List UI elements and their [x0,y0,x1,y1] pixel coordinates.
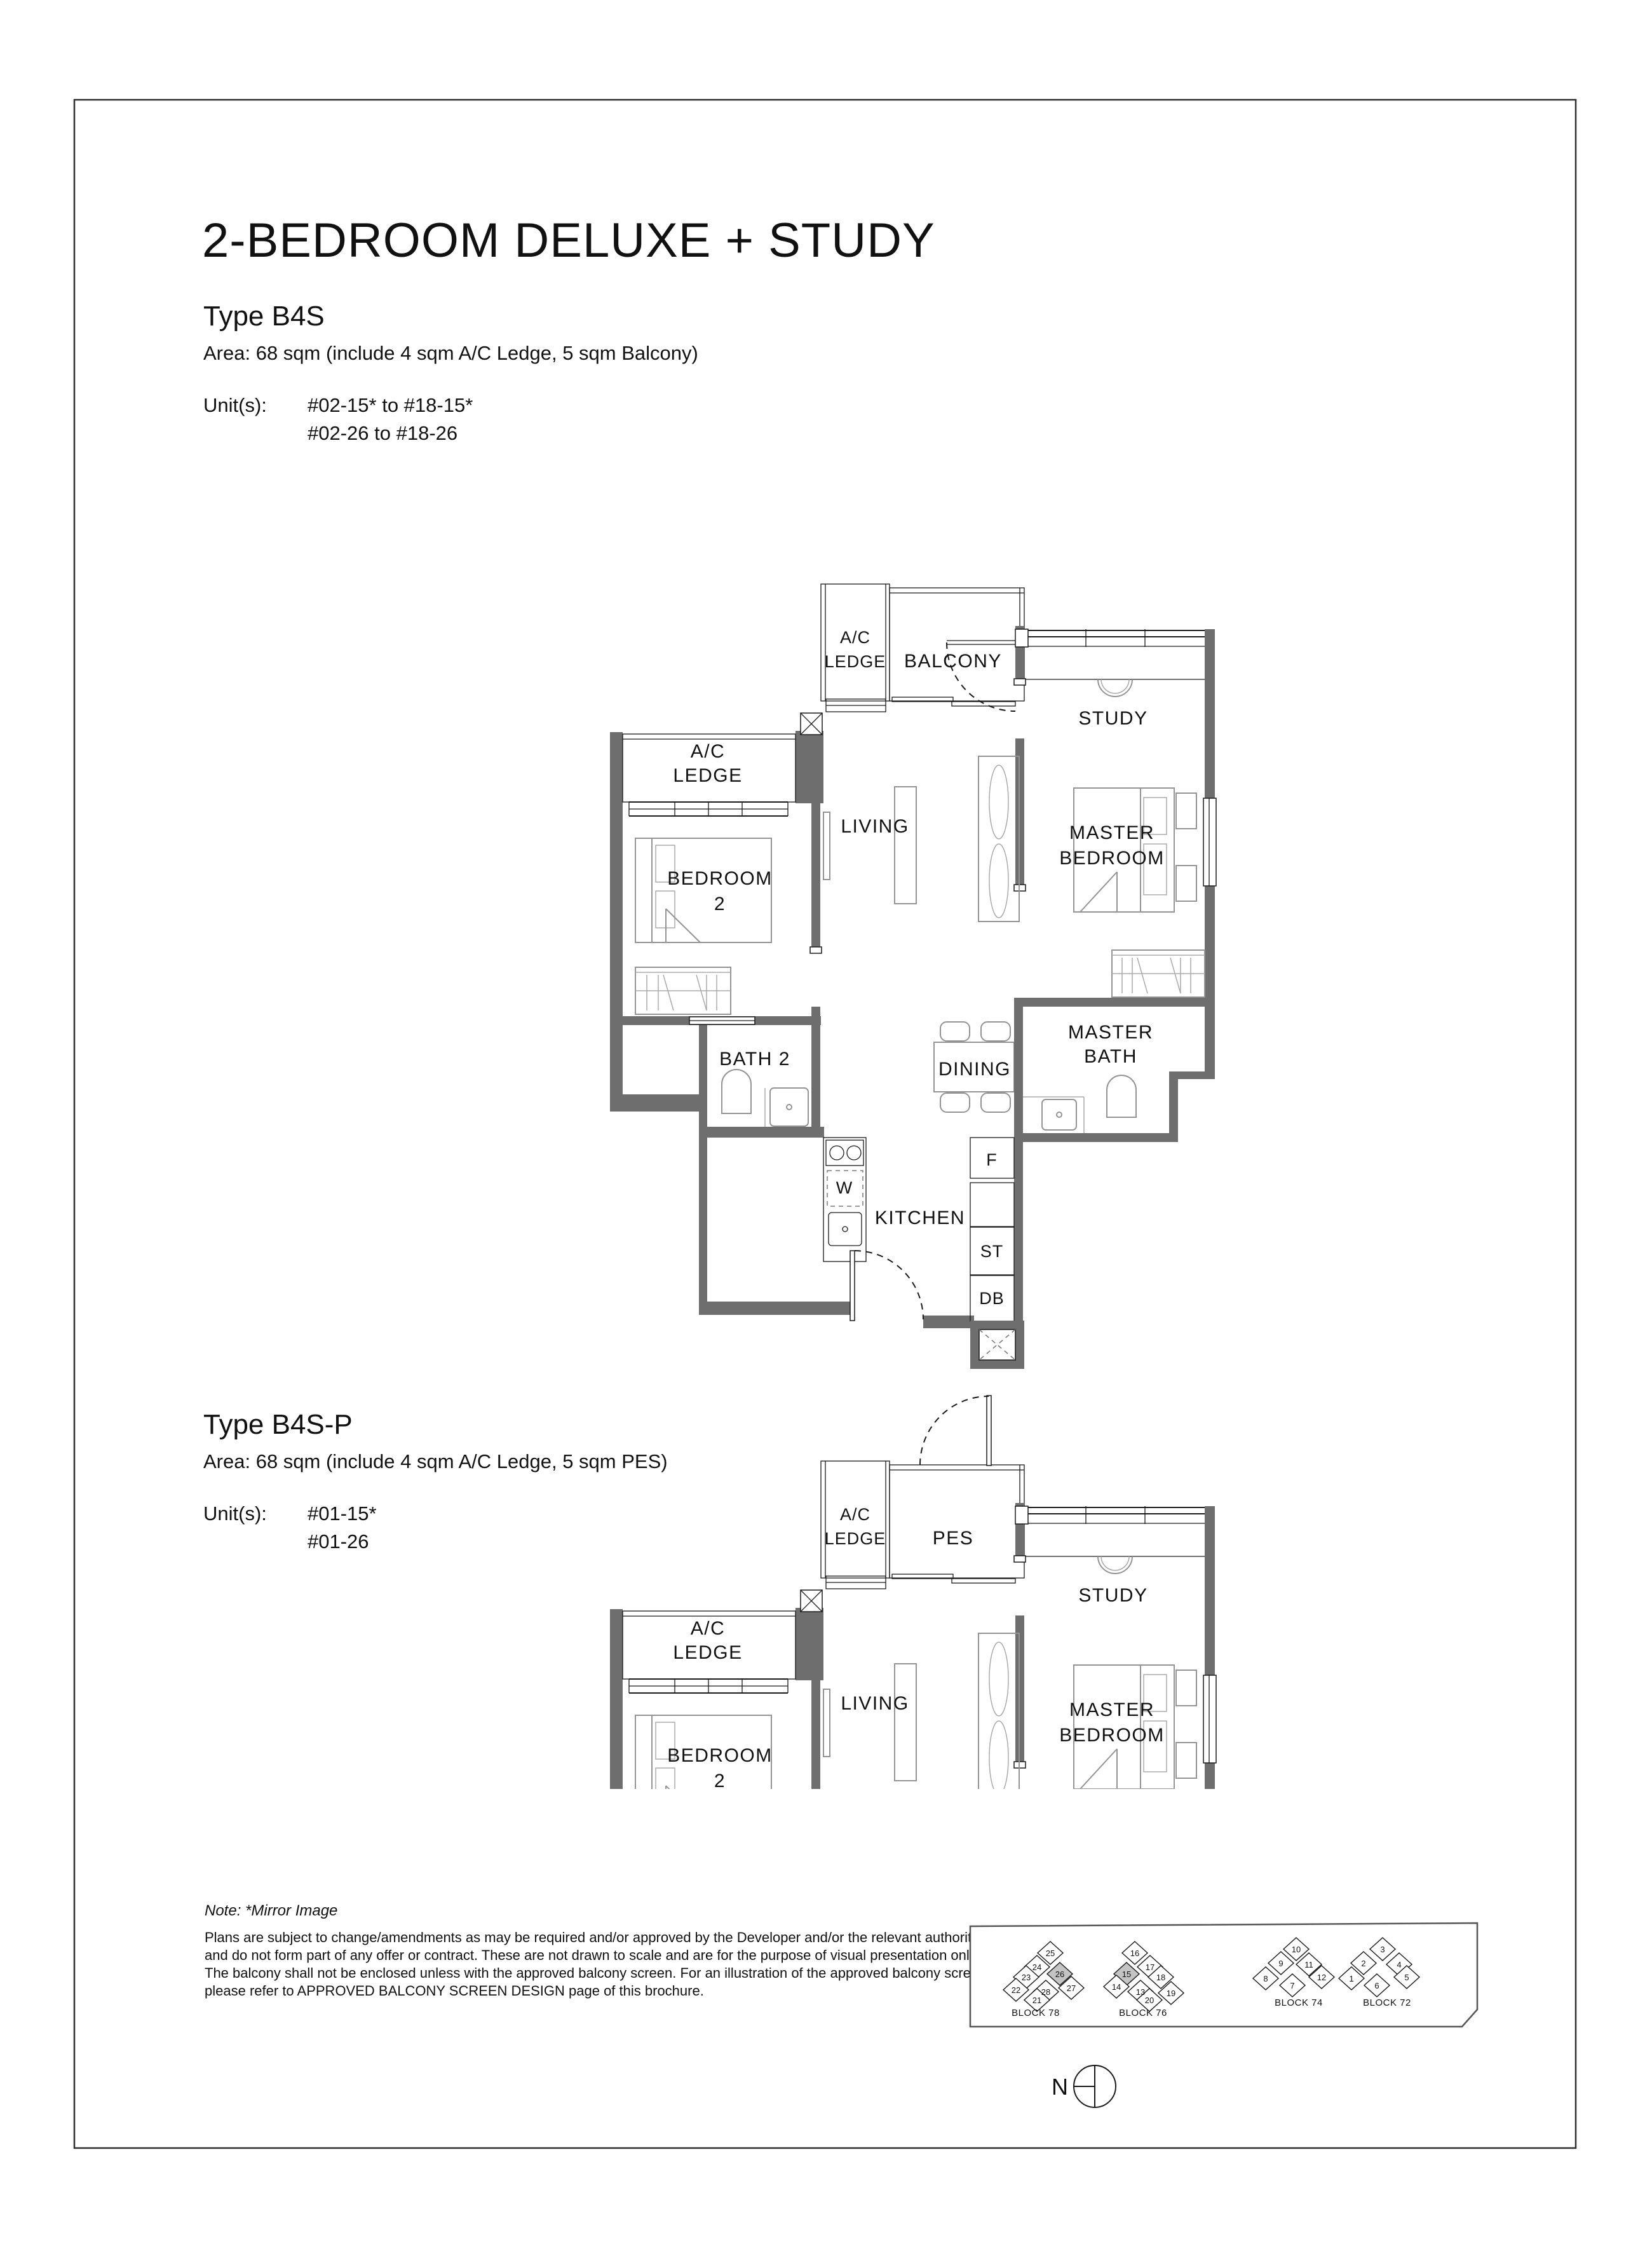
keyplan-unit-number: 14 [1112,1982,1121,1992]
key-plan: 2524232226272821BLOCK 781617151814131920… [970,1923,1477,2027]
keyplan-unit-number: 13 [1136,1987,1145,1997]
keyplan-unit-number: 18 [1156,1973,1165,1982]
room-label: KITCHEN [875,1207,965,1228]
room-label: DB [979,1289,1005,1308]
keyplan-block-label: BLOCK 78 [1012,2008,1060,2018]
unit-range-line: #02-26 to #18-26 [308,422,457,444]
keyplan-unit-number: 11 [1304,1960,1313,1969]
disclaimer-line: please refer to APPROVED BALCONY SCREEN … [205,1983,704,1999]
keyplan-unit-number: 24 [1032,1962,1041,1972]
disclaimer-line: The balcony shall not be enclosed unless… [205,1965,990,1981]
room-label: LIVING [841,1693,909,1714]
room-label: BEDROOM [667,868,773,889]
room-label: LEDGE [825,1529,886,1548]
room-label: LEDGE [825,652,886,671]
room-label: BATH [1084,1046,1137,1067]
notes: Note: *Mirror Image Plans are subject to… [205,1902,990,1999]
keyplan-unit-number: 27 [1067,1983,1076,1993]
unit-range-line: #02-15* to #18-15* [308,394,473,416]
room-label: A/C [691,741,726,762]
keyplan-block-label: BLOCK 76 [1119,2008,1167,2018]
keyplan-unit-number: 9 [1278,1959,1283,1968]
room-label: STUDY [1078,708,1148,729]
keyplan-unit-number: 17 [1146,1962,1154,1972]
room-label: F [986,1150,998,1169]
room-label: MASTER [1069,822,1154,843]
type-label: Type B4S-P [203,1409,353,1440]
room-label: 2 [714,894,726,915]
type-label: Type B4S [203,301,325,332]
page-title: 2-BEDROOM DELUXE + STUDY [202,214,935,268]
room-label: BALCONY [904,651,1002,672]
disclaimer-line: Plans are subject to change/amendments a… [205,1929,989,1945]
keyplan-unit-number: 23 [1022,1973,1031,1982]
room-label: LEDGE [673,765,742,786]
pes-gate [920,1396,991,1466]
floor-plan-b4s-p: A/CLEDGEPESSTUDYA/CLEDGELIVINGMASTERBEDR… [610,1396,1216,2246]
room-label: LIVING [841,816,909,837]
room-label: 2 [714,1771,726,1792]
area-text: Area: 68 sqm (include 4 sqm A/C Ledge, 5… [203,1450,668,1472]
keyplan-unit-number: 26 [1055,1969,1064,1979]
keyplan-unit-number: 21 [1032,1996,1041,2005]
room-label: W [836,1178,853,1197]
section-b4s: Type B4S Area: 68 sqm (include 4 sqm A/C… [203,301,698,444]
keyplan-unit-number: 10 [1292,1945,1301,1954]
room-label: MASTER [1069,1699,1154,1720]
section-b4s-p: Type B4S-P Area: 68 sqm (include 4 sqm A… [203,1409,668,1553]
unit-range-line: #01-26 [308,1530,369,1553]
room-label: A/C [840,628,870,647]
room-label: DINING [938,1059,1011,1080]
room-label: LEDGE [673,1642,742,1663]
room-label: BATH 2 [719,1049,790,1070]
keyplan-unit-number: 20 [1145,1996,1154,2005]
area-text: Area: 68 sqm (include 4 sqm A/C Ledge, 5… [203,342,698,364]
keyplan-unit-number: 28 [1041,1987,1050,1997]
note-text: Note: *Mirror Image [205,1902,337,1919]
keyplan-unit-number: 25 [1046,1948,1055,1958]
units-label: Unit(s): [203,1502,267,1525]
keyplan-unit-number: 19 [1167,1989,1175,1998]
floor-plan-b4s: A/CLEDGEBALCONYSTUDYA/CLEDGELIVINGMASTER… [610,584,1216,1369]
plan1-room-labels: A/CLEDGEBALCONYSTUDYA/CLEDGELIVINGMASTER… [667,628,1165,1308]
units-label: Unit(s): [203,394,267,416]
floorplan-canvas: 2-BEDROOM DELUXE + STUDY Type B4S Area: … [0,0,1652,2251]
room-label: A/C [691,1618,726,1639]
page-frame [74,100,1576,2148]
room-label: BEDROOM [1059,848,1165,869]
north-indicator: N [1052,2065,1116,2107]
keyplan-unit-number: 6 [1374,1981,1379,1990]
keyplan-unit-number: 8 [1263,1974,1268,1983]
keyplan-unit-number: 12 [1317,1973,1326,1982]
keyplan-block-label: BLOCK 74 [1275,1997,1323,2008]
keyplan-unit-number: 2 [1361,1959,1365,1968]
keyplan-unit-number: 4 [1397,1960,1401,1969]
room-label: MASTER [1068,1022,1153,1043]
keyplan-unit-number: 3 [1380,1945,1385,1954]
disclaimer-paragraph: Plans are subject to change/amendments a… [205,1929,990,1999]
keyplan-block-label: BLOCK 72 [1363,1997,1411,2008]
north-label: N [1052,2074,1068,2100]
room-label: ST [980,1242,1004,1261]
keyplan-unit-number: 22 [1012,1985,1020,1995]
keyplan-unit-number: 1 [1349,1974,1353,1983]
header: 2-BEDROOM DELUXE + STUDY [202,214,935,268]
room-label: STUDY [1078,1585,1148,1606]
room-label: BEDROOM [667,1745,773,1766]
keyplan-unit-number: 7 [1290,1981,1294,1990]
room-label: A/C [840,1505,870,1524]
room-label: BEDROOM [1059,1725,1165,1746]
disclaimer-line: and do not form part of any offer or con… [205,1947,979,1963]
brochure-page: 2-BEDROOM DELUXE + STUDY Type B4S Area: … [0,0,1652,2251]
keyplan-unit-number: 5 [1404,1973,1409,1982]
keyplan-unit-number: 16 [1130,1948,1139,1958]
keyplan-unit-number: 15 [1122,1969,1131,1979]
unit-range-line: #01-15* [308,1502,377,1525]
room-label: PES [933,1528,974,1549]
